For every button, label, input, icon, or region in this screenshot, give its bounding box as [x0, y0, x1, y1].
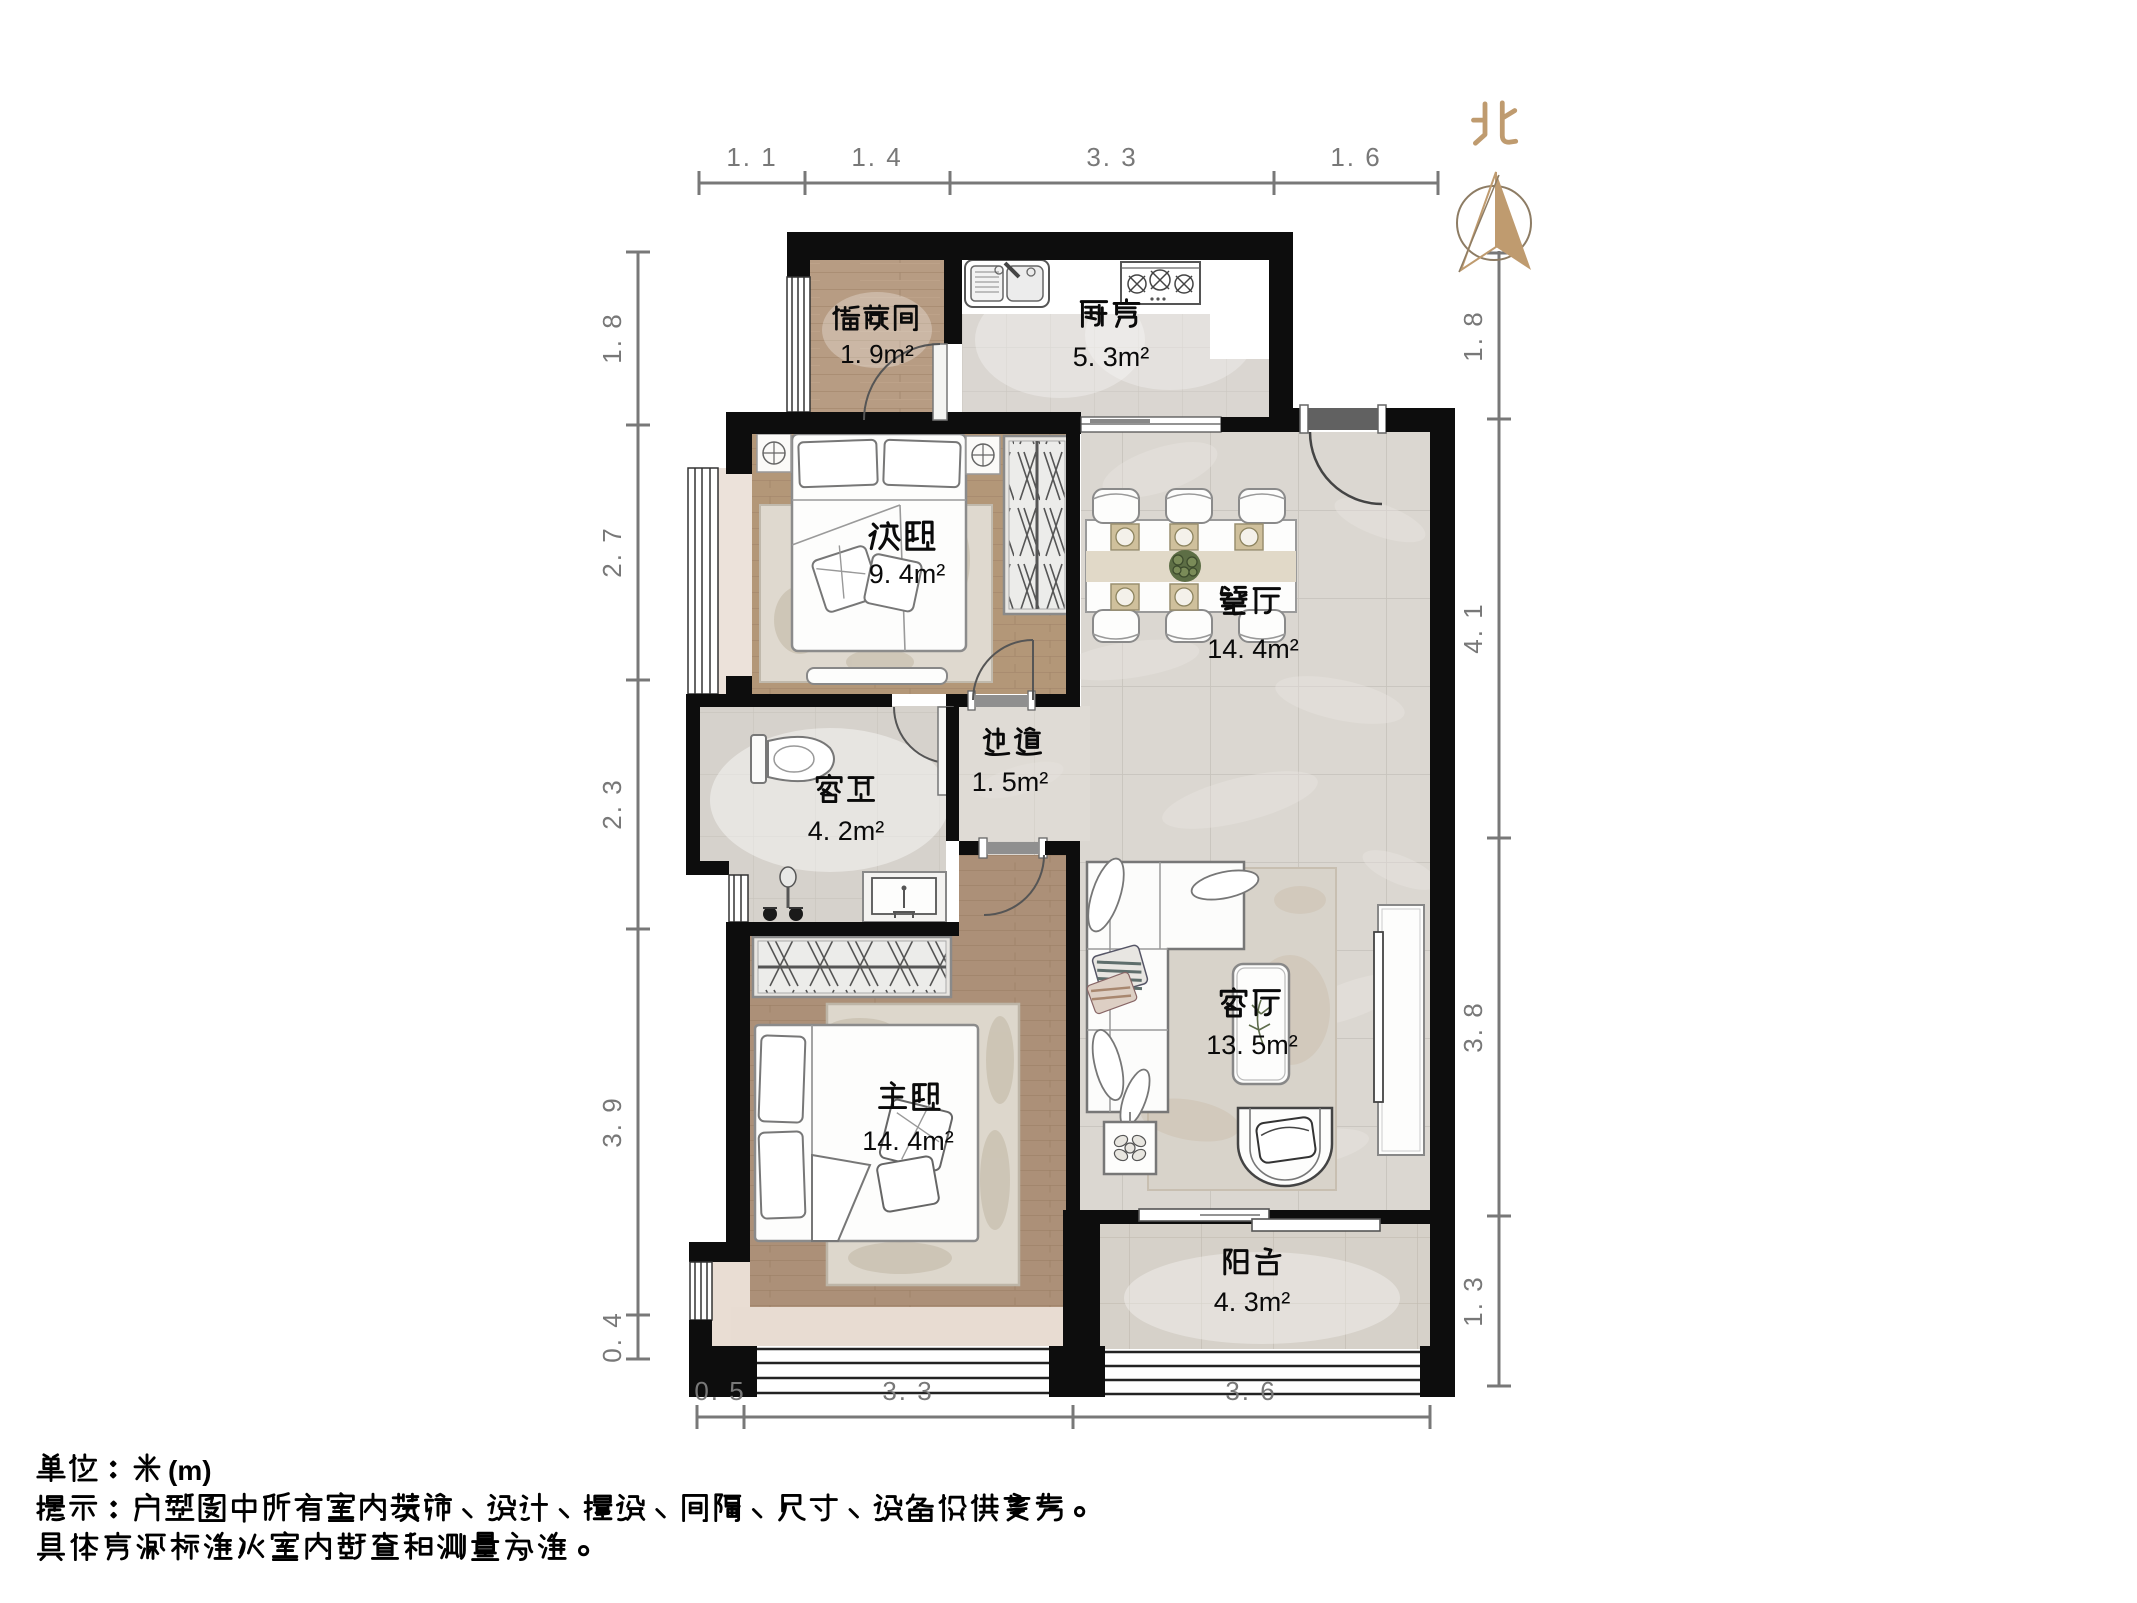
svg-text:3. 8: 3. 8: [1458, 1001, 1488, 1052]
svg-text:0. 5: 0. 5: [694, 1376, 745, 1406]
svg-text:14. 4m²: 14. 4m²: [1207, 634, 1299, 664]
svg-text:13. 5m²: 13. 5m²: [1206, 1030, 1298, 1060]
svg-text:3. 6: 3. 6: [1225, 1376, 1276, 1406]
svg-text:2. 3: 2. 3: [597, 778, 627, 829]
svg-text:1. 8: 1. 8: [597, 312, 627, 363]
svg-text:1. 8: 1. 8: [1458, 310, 1488, 361]
svg-text:3. 3: 3. 3: [1086, 142, 1137, 172]
svg-text:4. 1: 4. 1: [1458, 602, 1488, 653]
svg-text:2. 7: 2. 7: [597, 526, 627, 577]
svg-text:1. 3: 1. 3: [1458, 1275, 1488, 1326]
svg-text:1. 1: 1. 1: [726, 142, 777, 172]
svg-text:4. 3m²: 4. 3m²: [1214, 1287, 1291, 1317]
svg-text:1. 5m²: 1. 5m²: [972, 767, 1049, 797]
svg-text:3. 3: 3. 3: [882, 1376, 933, 1406]
svg-text:14. 4m²: 14. 4m²: [862, 1126, 954, 1156]
svg-text:3. 9: 3. 9: [597, 1096, 627, 1147]
svg-text:1. 4: 1. 4: [851, 142, 902, 172]
svg-text:4. 2m²: 4. 2m²: [808, 816, 885, 846]
svg-text:0. 4: 0. 4: [597, 1311, 627, 1362]
svg-text:1. 9m²: 1. 9m²: [840, 339, 914, 369]
svg-text:1. 6: 1. 6: [1330, 142, 1381, 172]
svg-text:5. 3m²: 5. 3m²: [1073, 342, 1150, 372]
svg-text:9. 4m²: 9. 4m²: [869, 559, 946, 589]
svg-text:(m): (m): [168, 1455, 212, 1486]
